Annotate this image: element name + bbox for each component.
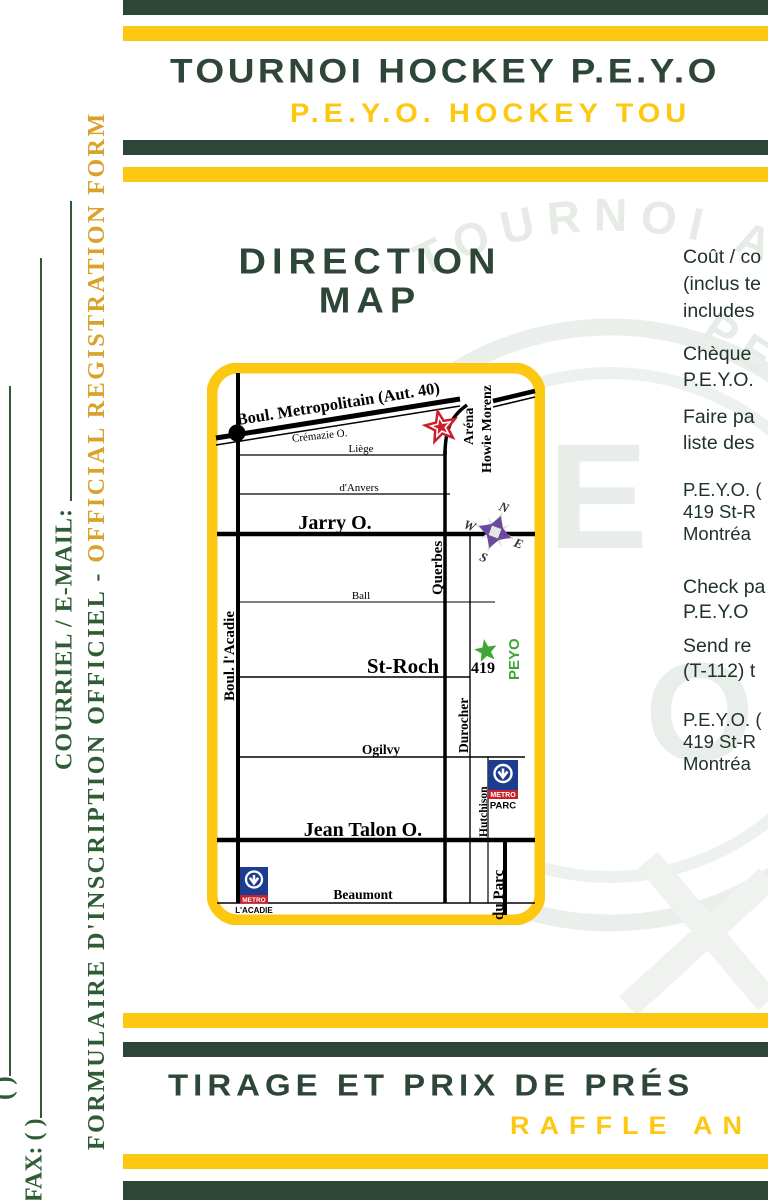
footer-stripe-dark-2 — [123, 1181, 768, 1200]
info-paragraph-cheque: Chèque P.E.Y.O. — [683, 341, 768, 393]
street-st-roch: St-Roch — [367, 654, 440, 678]
watermark-letter-e: E — [548, 412, 648, 580]
peyo-street-number: 419 — [471, 660, 495, 677]
info-line: P.E.Y.O. — [683, 367, 768, 393]
info-line: P.E.Y.O. ( — [683, 709, 768, 731]
footer-stripe-dark-1 — [123, 1042, 768, 1057]
peyo-label: PEYO — [506, 638, 523, 680]
street-durocher: Durocher — [456, 698, 471, 753]
footer-stripe-yellow-1 — [123, 1013, 768, 1028]
header-stripe-yellow-1 — [123, 26, 768, 41]
email-field-blank — [48, 201, 72, 501]
arena-label-line1: Aréna — [462, 408, 477, 445]
phone-field-cut: ( ) — [0, 386, 18, 1100]
street-du-parc: du Parc — [491, 870, 507, 920]
info-line: P.E.Y.O — [683, 600, 768, 625]
email-field-label: COURRIEL / E-MAIL: — [52, 508, 78, 770]
street-acadie: Boul. l'Acadie — [222, 611, 238, 701]
fax-field-blank — [18, 258, 42, 1118]
header-stripe-dark-1 — [123, 0, 768, 15]
direction-map-title-line1: DIRECTION — [205, 243, 535, 282]
registration-form-page: TOURNOI AT PEEW E O ( ) FAX: ( ) COURRIE… — [0, 0, 768, 1200]
info-paragraph-faire: Faire pa liste des — [683, 404, 768, 456]
info-line: Coût / co — [683, 244, 768, 271]
direction-map-title: DIRECTION MAP — [205, 243, 535, 321]
footer-title: TIRAGE ET PRIX DE PRÉS — [168, 1068, 694, 1103]
info-line: Faire pa — [683, 404, 768, 430]
street-beaumont: Beaumont — [333, 887, 393, 902]
info-paragraph-cost: Coût / co (inclus te includes — [683, 244, 768, 325]
header-stripe-yellow-2 — [123, 167, 768, 182]
info-line: Chèque — [683, 341, 768, 367]
street-jean-talon: Jean Talon O. — [304, 819, 422, 841]
street-querbes: Querbes — [430, 541, 446, 595]
page-title: TOURNOI HOCKEY P.E.Y.O — [170, 52, 720, 91]
street-ogilvy: Ogilvy — [362, 742, 401, 757]
header-stripe-dark-2 — [123, 140, 768, 155]
street-liege: Liège — [348, 443, 373, 455]
info-paragraph-send: Send re (T-112) t — [683, 634, 768, 684]
footer-subtitle: RAFFLE AN — [510, 1112, 752, 1141]
metro-acadie-icon: METRO L'ACADIE — [235, 867, 273, 915]
direction-map: Boul. Metropolitain (Aut. 40) Crémazie O… — [207, 363, 545, 925]
page-subtitle: P.E.Y.O. HOCKEY TOU — [290, 99, 691, 129]
metro-parc-metro-label: METRO — [490, 792, 516, 799]
info-line: liste des — [683, 430, 768, 456]
street-danvers: d'Anvers — [339, 482, 378, 494]
direction-map-title-line2: MAP — [205, 282, 535, 321]
info-line: 419 St-R — [683, 731, 768, 753]
metro-parc-station-label: PARC — [490, 801, 516, 812]
metro-parc-icon: METRO PARC — [488, 760, 518, 812]
footer-stripe-yellow-2 — [123, 1154, 768, 1169]
info-line: Montréa — [683, 523, 768, 545]
fax-field-label: FAX: ( ) — [22, 1118, 48, 1200]
fax-field: FAX: ( ) — [18, 258, 49, 1200]
info-line: 419 St-R — [683, 501, 768, 523]
arena-label-line2: Howie Morenz — [480, 385, 495, 473]
info-line: (inclus te — [683, 271, 768, 298]
phone-field-parens: ( ) — [0, 1076, 17, 1100]
info-paragraph-address-1: P.E.Y.O. ( 419 St-R Montréa — [683, 479, 768, 545]
info-line: Montréa — [683, 753, 768, 775]
form-title-vertical: FORMULAIRE D'INSCRIPTION OFFICIEL - OFFI… — [84, 111, 111, 1150]
street-ball: Ball — [352, 590, 370, 602]
info-paragraph-address-2: P.E.Y.O. ( 419 St-R Montréa — [683, 709, 768, 775]
info-paragraph-check: Check pa P.E.Y.O — [683, 575, 768, 625]
info-line: (T-112) t — [683, 659, 768, 684]
metro-acadie-station-label: L'ACADIE — [235, 906, 273, 915]
form-title-english: OFFICIAL REGISTRATION FORM — [84, 111, 110, 562]
metro-acadie-metro-label: METRO — [242, 897, 265, 904]
info-line: includes — [683, 298, 768, 325]
info-line: Send re — [683, 634, 768, 659]
info-line: Check pa — [683, 575, 768, 600]
street-jarry: Jarry O. — [298, 512, 371, 534]
info-line: P.E.Y.O. ( — [683, 479, 768, 501]
email-field: COURRIEL / E-MAIL: — [48, 201, 79, 770]
form-title-french: FORMULAIRE D'INSCRIPTION OFFICIEL - — [84, 563, 110, 1150]
phone-field-blank — [0, 386, 11, 1076]
